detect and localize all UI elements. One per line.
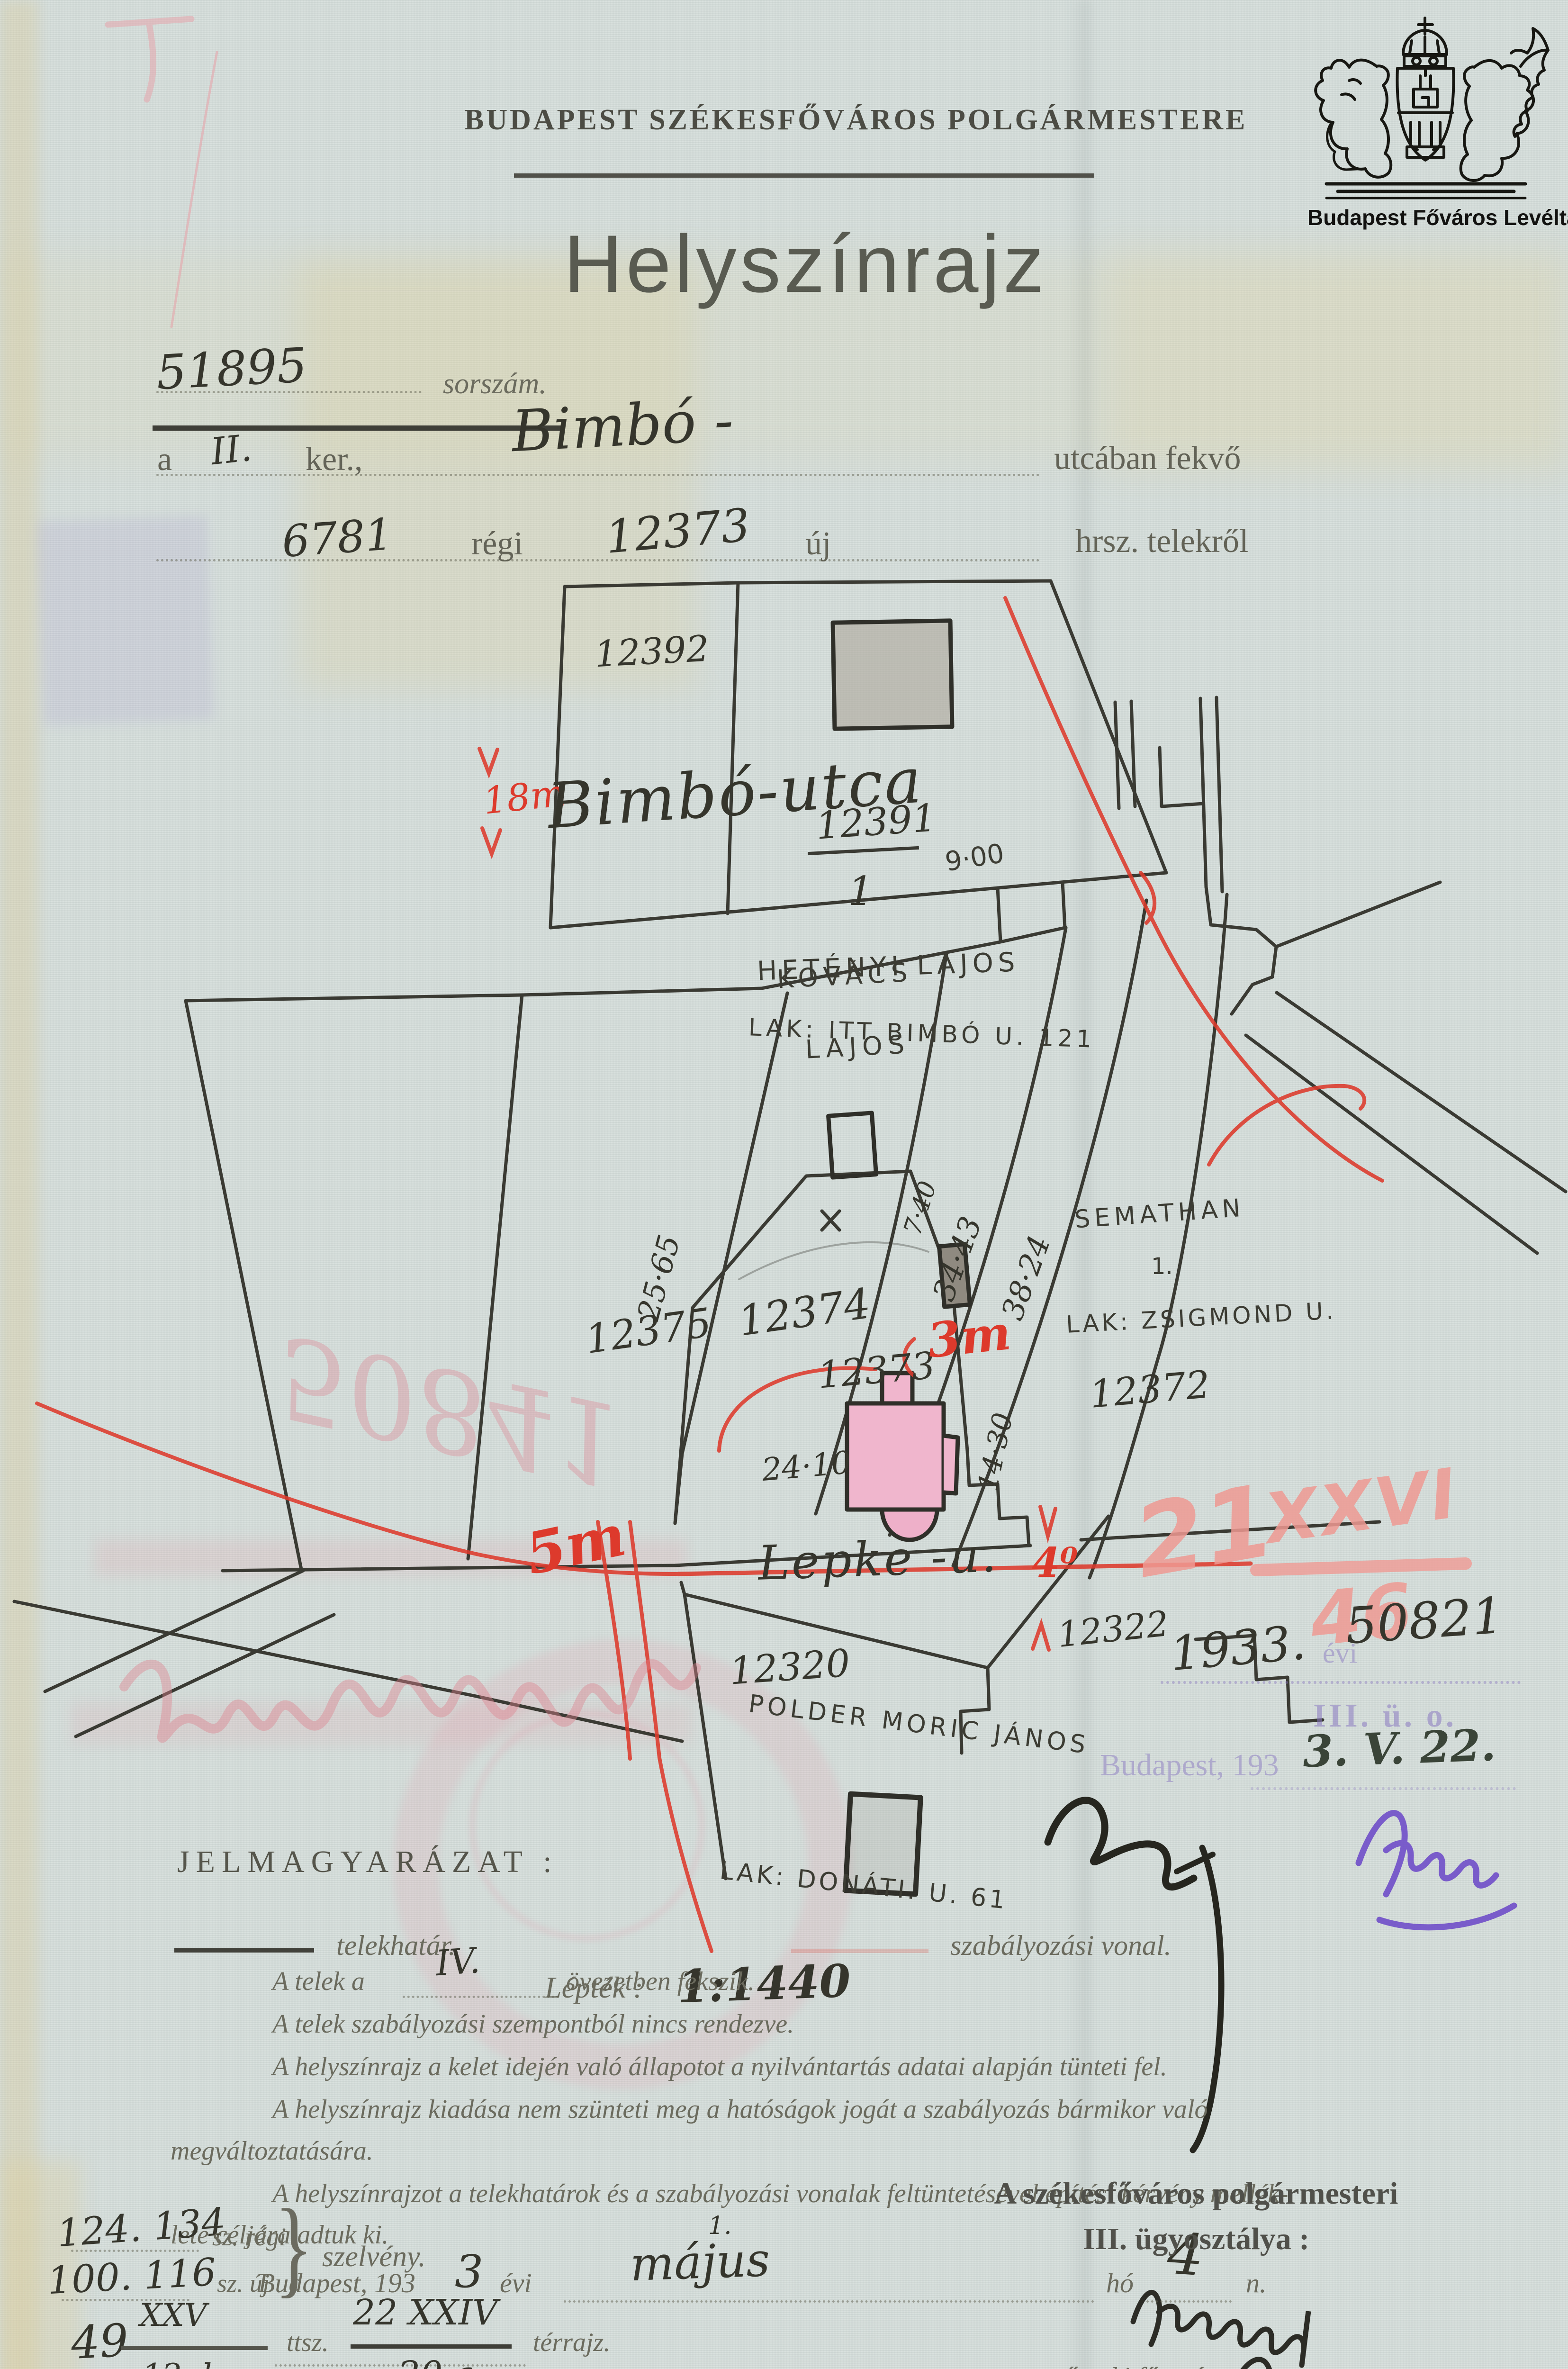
date-n: n. <box>1246 2267 1267 2299</box>
stamp-dotted-line-2 <box>1251 1787 1516 1790</box>
body-zone-post: övezetben fekszik. <box>566 1966 755 1997</box>
body-line4a: A helyszínrajz kiadása nem szünteti meg … <box>272 2094 1208 2125</box>
body-zone-dotted <box>403 1996 559 1998</box>
office-line2: III. ügyosztálya : <box>924 2221 1469 2257</box>
frac1-bottom: 12 d. <box>142 2357 222 2369</box>
dim-24-10: 24·10 <box>760 1444 853 1488</box>
date-year-hw: 3 <box>455 2246 483 2298</box>
owner-12374-line2: LAJOS <box>805 1029 911 1064</box>
office-line1: A székesfőváros polgármesteri <box>924 2176 1469 2212</box>
body-line2: A telek szabályozási szempontból nincs r… <box>272 2009 794 2039</box>
signer-title: műszaki főtanácsos <box>1045 2362 1250 2369</box>
date-month-dotted <box>564 2300 1094 2303</box>
note-3m: 3m <box>925 1304 1013 1369</box>
note-4-0: 4⁰ <box>1032 1539 1078 1587</box>
filing-number: 50821 <box>1343 1586 1505 1655</box>
map-number: 49 <box>70 2315 129 2369</box>
date-note-handwritten: 3. V. 22. <box>1302 1719 1496 1777</box>
building-12374-small <box>829 1113 876 1177</box>
filing-year: 1933. <box>1168 1615 1307 1682</box>
body-line4b: megváltoztatására. <box>171 2136 373 2166</box>
frac2-rule <box>351 2344 512 2349</box>
frac2-bottom: 20 a <box>398 2354 475 2369</box>
owner-12372-line2: 1. <box>1151 1253 1173 1280</box>
main-signature <box>1133 2292 1308 2365</box>
date-ho: hó <box>1106 2267 1134 2299</box>
body-zone-value: IV. <box>434 1940 481 1984</box>
new-sheet-label: sz. új <box>217 2269 270 2298</box>
body-line3: A helyszínrajz a kelet idején való állap… <box>272 2052 1167 2082</box>
crayon-fraction-line <box>1256 1564 1466 1570</box>
terrajz-label: térrajz. <box>533 2327 610 2358</box>
building-12391 <box>833 621 952 729</box>
new-sheet-number: 100. 116 <box>46 2250 217 2303</box>
date-evi: évi <box>500 2267 532 2299</box>
plot-12391-sub-label: 1 <box>848 868 873 914</box>
frac1-top: XXV <box>140 2297 207 2333</box>
stamp-dotted-line-1 <box>1161 1681 1521 1684</box>
date-day-dotted <box>1146 2300 1232 2303</box>
street-lepke-label: Lepke -u. <box>757 1527 999 1591</box>
legend-heading: JELMAGYARÁZAT : <box>177 1844 559 1880</box>
sheet-brace: } <box>274 2184 314 2310</box>
legend-boundary-line-sample <box>174 1948 314 1953</box>
legend-regulation-label: szabályozási vonal. <box>950 1929 1171 1962</box>
body-zone-pre: A telek a <box>272 1966 365 1997</box>
scanned-document-page: 50841 BUDAPEST SZÉKESFŐVÁROS POLGÁRMESTE… <box>0 0 1568 2369</box>
violet-signature <box>1359 1813 1514 1927</box>
ttsz-label: ttsz. <box>287 2327 329 2358</box>
crayon-21: 21 <box>1126 1462 1282 1600</box>
date-month-hw: május <box>629 2233 771 2292</box>
plot-12392-label: 12392 <box>594 627 710 676</box>
frac1-rule <box>121 2346 268 2350</box>
frac2-top: 22 XXIV <box>353 2292 498 2333</box>
stamp-budapest-date: Budapest, 193 <box>1100 1747 1279 1783</box>
plot-12320-label: 12320 <box>728 1641 851 1693</box>
sheet-word: szelvény. <box>322 2240 426 2274</box>
legend-regulation-line-sample <box>791 1949 928 1953</box>
pink-crayon-marks <box>108 19 217 327</box>
